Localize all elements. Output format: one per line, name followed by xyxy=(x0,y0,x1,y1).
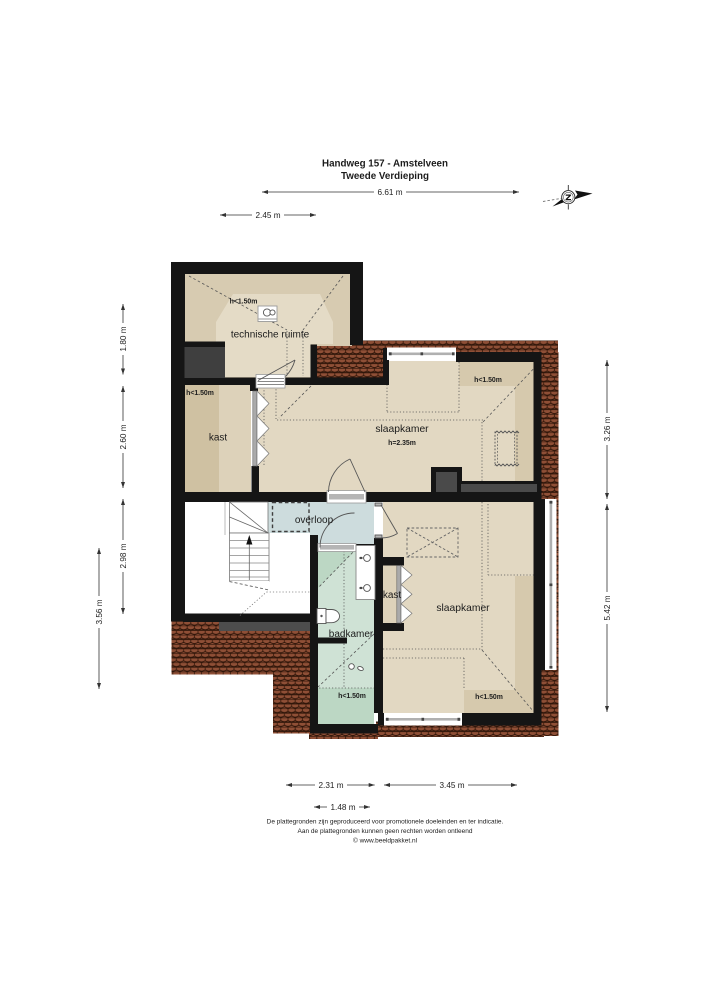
svg-text:technische ruimte: technische ruimte xyxy=(231,330,310,341)
svg-text:3.26 m: 3.26 m xyxy=(603,416,612,441)
svg-text:2.45 m: 2.45 m xyxy=(255,211,280,220)
svg-text:slaapkamer: slaapkamer xyxy=(375,424,429,435)
svg-text:5.42 m: 5.42 m xyxy=(603,595,612,620)
svg-text:2.60 m: 2.60 m xyxy=(119,424,128,449)
svg-text:3.56 m: 3.56 m xyxy=(95,599,104,624)
svg-text:kast: kast xyxy=(383,590,402,601)
svg-text:h<1.50m: h<1.50m xyxy=(230,299,258,306)
svg-text:overloop: overloop xyxy=(295,515,334,526)
svg-text:1.80 m: 1.80 m xyxy=(119,326,128,351)
svg-text:h<1.50m: h<1.50m xyxy=(474,377,502,384)
svg-text:© www.beeldpakket.nl: © www.beeldpakket.nl xyxy=(353,837,418,845)
svg-text:1.48 m: 1.48 m xyxy=(330,803,355,812)
svg-text:h=2.35m: h=2.35m xyxy=(388,440,416,447)
svg-text:h<1.50m: h<1.50m xyxy=(338,693,366,700)
svg-text:h<1.50m: h<1.50m xyxy=(186,390,214,397)
svg-text:3.45 m: 3.45 m xyxy=(439,781,464,790)
svg-text:badkamer: badkamer xyxy=(329,629,374,640)
svg-text:De plattegronden zijn geproduc: De plattegronden zijn geproduceerd voor … xyxy=(267,819,504,826)
svg-text:Tweede Verdieping: Tweede Verdieping xyxy=(341,171,429,182)
svg-text:Handweg 157 - Amstelveen: Handweg 157 - Amstelveen xyxy=(322,159,448,170)
svg-text:kast: kast xyxy=(209,433,228,444)
svg-text:2.31 m: 2.31 m xyxy=(318,781,343,790)
svg-text:h<1.50m: h<1.50m xyxy=(475,694,503,701)
svg-text:2.98 m: 2.98 m xyxy=(119,543,128,568)
svg-text:slaapkamer: slaapkamer xyxy=(436,603,490,614)
svg-text:Aan de plattegronden kunnen ge: Aan de plattegronden kunnen geen rechten… xyxy=(298,828,473,835)
svg-text:6.61 m: 6.61 m xyxy=(377,188,402,197)
